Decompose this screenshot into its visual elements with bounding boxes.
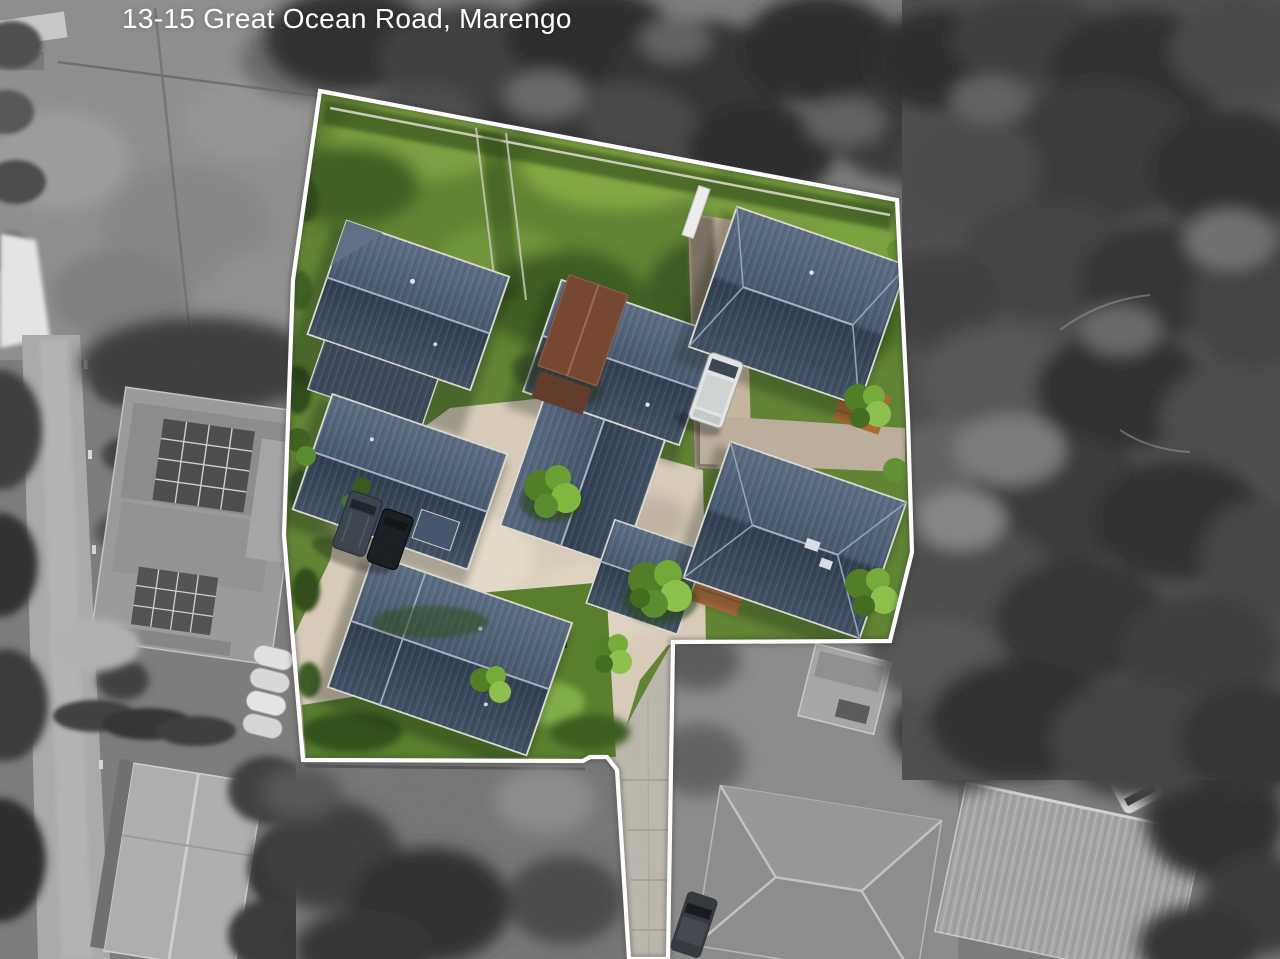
photo-grain xyxy=(0,0,1280,959)
aerial-photo-canvas xyxy=(0,0,1280,959)
aerial-photo: 13-15 Great Ocean Road, Marengo xyxy=(0,0,1280,959)
address-label: 13-15 Great Ocean Road, Marengo xyxy=(122,2,572,36)
